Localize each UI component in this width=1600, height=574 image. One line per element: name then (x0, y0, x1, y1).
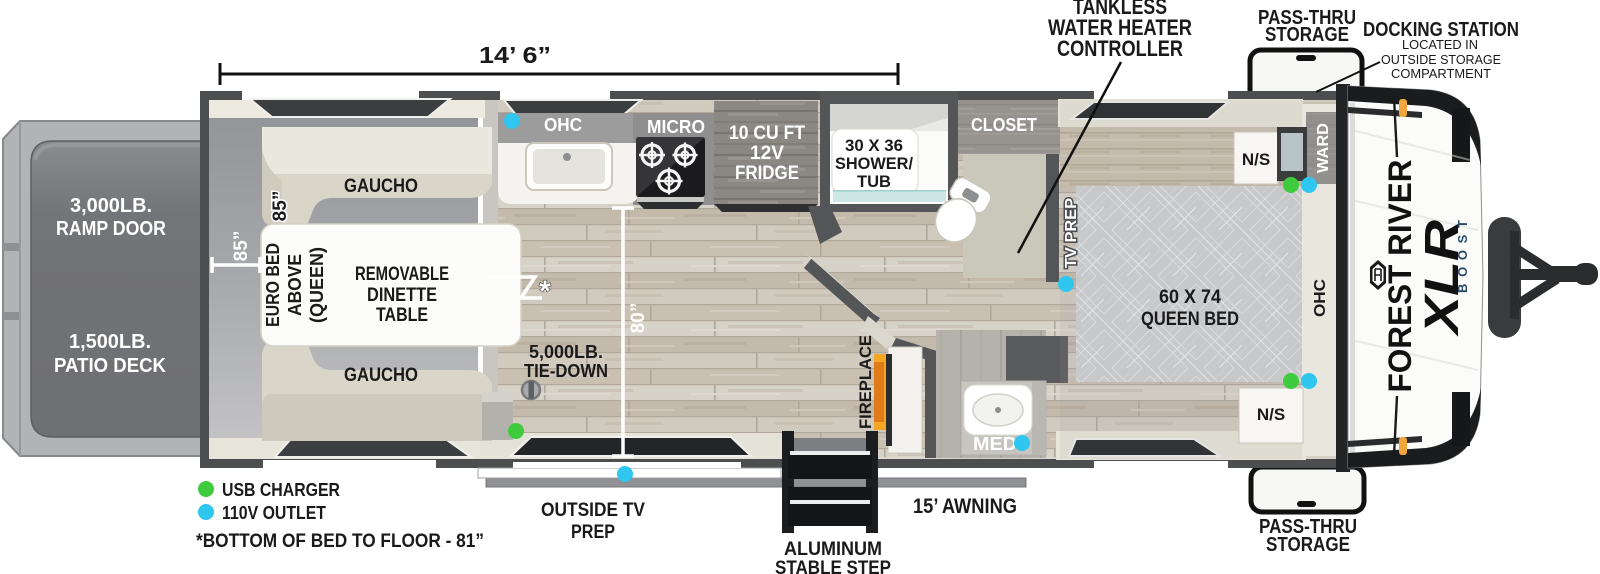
svg-text:REMOVABLE: REMOVABLE (355, 264, 449, 285)
svg-text:85”: 85” (270, 191, 291, 222)
svg-text:60 X 74: 60 X 74 (1159, 287, 1221, 308)
svg-text:COMPARTMENT: COMPARTMENT (1391, 66, 1491, 81)
svg-text:FOREST RIVER: FOREST RIVER (1382, 160, 1418, 393)
svg-text:ALUMINUM: ALUMINUM (784, 539, 882, 560)
svg-text:DINETTE: DINETTE (367, 285, 437, 306)
svg-text:SHOWER/: SHOWER/ (835, 154, 913, 173)
svg-text:TIE-DOWN: TIE-DOWN (524, 361, 608, 381)
svg-text:1,500LB.: 1,500LB. (69, 331, 151, 353)
svg-text:15’ AWNING: 15’ AWNING (913, 495, 1017, 518)
svg-text:QUEEN BED: QUEEN BED (1141, 309, 1239, 330)
svg-text:(QUEEN): (QUEEN) (307, 247, 327, 323)
svg-text:STORAGE: STORAGE (1266, 534, 1350, 556)
svg-text:USB CHARGER: USB CHARGER (222, 480, 340, 500)
svg-text:CLOSET: CLOSET (971, 115, 1037, 135)
svg-text:TABLE: TABLE (376, 305, 428, 326)
svg-text:12V: 12V (750, 143, 784, 164)
svg-text:TV PREP: TV PREP (1063, 198, 1080, 268)
svg-text:EURO BED: EURO BED (263, 243, 283, 327)
svg-text:14’ 6”: 14’ 6” (479, 42, 551, 68)
svg-text:*: * (539, 275, 551, 308)
svg-text:TUB: TUB (857, 172, 891, 191)
svg-text:OHC: OHC (1312, 279, 1329, 317)
svg-text:PREP: PREP (571, 522, 615, 543)
svg-text:OHC: OHC (544, 115, 582, 135)
svg-text:GAUCHO: GAUCHO (344, 176, 418, 197)
svg-text:30 X 36: 30 X 36 (845, 136, 903, 155)
svg-text:80”: 80” (628, 303, 649, 334)
svg-text:N/S: N/S (1257, 405, 1285, 424)
svg-text:OUTSIDE STORAGE: OUTSIDE STORAGE (1381, 52, 1501, 67)
svg-text:STABLE STEP: STABLE STEP (775, 558, 891, 574)
svg-text:LOCATED IN: LOCATED IN (1402, 37, 1478, 52)
svg-text:FIREPLACE: FIREPLACE (856, 335, 875, 429)
svg-text:RAMP DOOR: RAMP DOOR (56, 218, 166, 240)
svg-text:110V OUTLET: 110V OUTLET (222, 503, 326, 523)
svg-text:MED: MED (973, 434, 1017, 454)
svg-text:BOOST: BOOST (1455, 215, 1470, 293)
svg-text:OUTSIDE TV: OUTSIDE TV (541, 500, 645, 521)
svg-text:ABOVE: ABOVE (285, 254, 305, 316)
svg-text:MICRO: MICRO (647, 117, 705, 137)
svg-text:*BOTTOM OF BED TO FLOOR - 81”: *BOTTOM OF BED TO FLOOR - 81” (196, 531, 484, 552)
svg-text:5,000LB.: 5,000LB. (529, 342, 603, 362)
svg-text:STORAGE: STORAGE (1265, 24, 1349, 46)
svg-text:CONTROLLER: CONTROLLER (1057, 36, 1183, 61)
svg-text:N/S: N/S (1242, 150, 1270, 169)
svg-text:PATIO DECK: PATIO DECK (54, 355, 167, 377)
svg-text:85”: 85” (231, 231, 252, 262)
svg-text:3,000LB.: 3,000LB. (70, 195, 152, 217)
svg-text:WARD: WARD (1315, 123, 1332, 173)
svg-text:10 CU FT: 10 CU FT (729, 123, 805, 144)
svg-text:GAUCHO: GAUCHO (344, 365, 418, 386)
svg-text:FRIDGE: FRIDGE (735, 163, 799, 184)
